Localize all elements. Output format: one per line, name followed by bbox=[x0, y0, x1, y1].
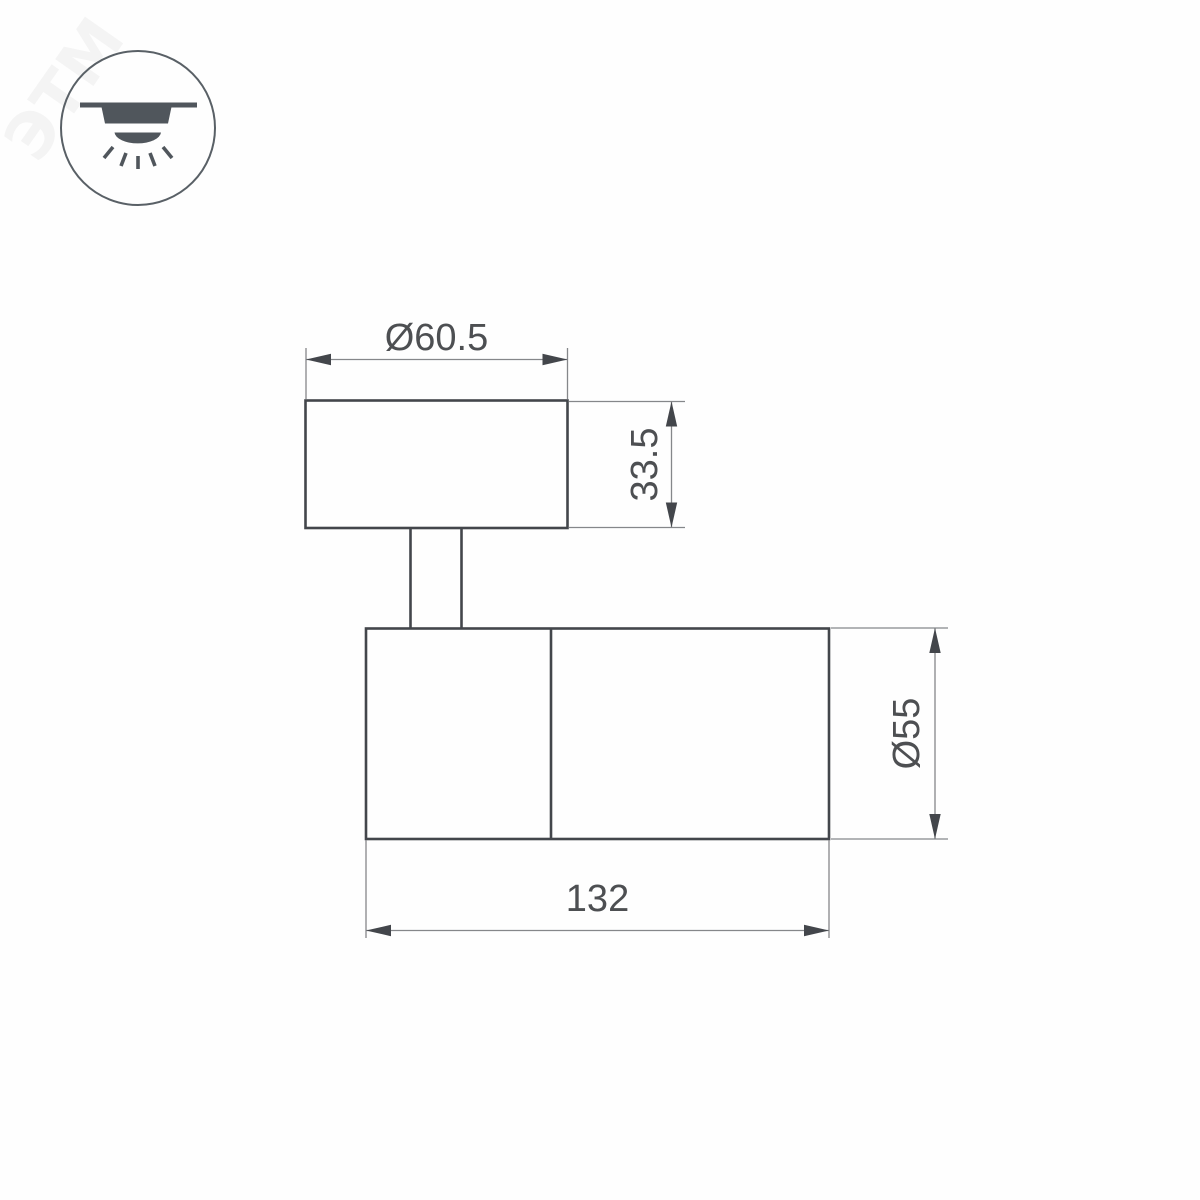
arrowhead-left-icon bbox=[306, 354, 331, 365]
light-dome bbox=[115, 133, 162, 144]
dimension-body-length: 132 bbox=[366, 840, 829, 938]
icon-circle bbox=[61, 51, 215, 205]
ceiling-line bbox=[80, 103, 197, 108]
arrowhead-down-icon bbox=[666, 503, 677, 528]
dimension-mount-height: 33.5 bbox=[569, 402, 685, 528]
light-rays-icon bbox=[104, 147, 172, 169]
mount-base-outline bbox=[306, 401, 568, 529]
arrowhead-right-icon bbox=[543, 354, 568, 365]
arrowhead-up-icon bbox=[929, 628, 940, 653]
dimension-mount-diameter: Ø60.5 bbox=[306, 317, 568, 399]
fixture-body bbox=[102, 107, 172, 124]
arrowhead-right-icon bbox=[804, 925, 829, 936]
arrowhead-left-icon bbox=[366, 925, 391, 936]
pivot-stem-outline bbox=[411, 528, 462, 628]
arrowhead-down-icon bbox=[929, 814, 940, 839]
dimension-body-diameter: Ø55 bbox=[831, 628, 948, 839]
dimension-label-body-length: 132 bbox=[566, 878, 629, 920]
mount-base-rect bbox=[306, 401, 568, 529]
dimension-label-mount-diameter: Ø60.5 bbox=[385, 317, 489, 359]
watermark-text: ЭТМ bbox=[0, 5, 140, 174]
lamp-body-outline bbox=[366, 629, 829, 840]
arrowhead-up-icon bbox=[666, 402, 677, 427]
dimension-label-mount-height: 33.5 bbox=[624, 428, 666, 502]
drawing-canvas: ЭТМ bbox=[0, 0, 1200, 1200]
surface-mount-downlight-icon bbox=[61, 51, 215, 205]
dimension-drawing: ЭТМ bbox=[0, 0, 1200, 1200]
dimension-label-body-diameter: Ø55 bbox=[886, 698, 928, 770]
lamp-body-rect bbox=[366, 629, 829, 840]
